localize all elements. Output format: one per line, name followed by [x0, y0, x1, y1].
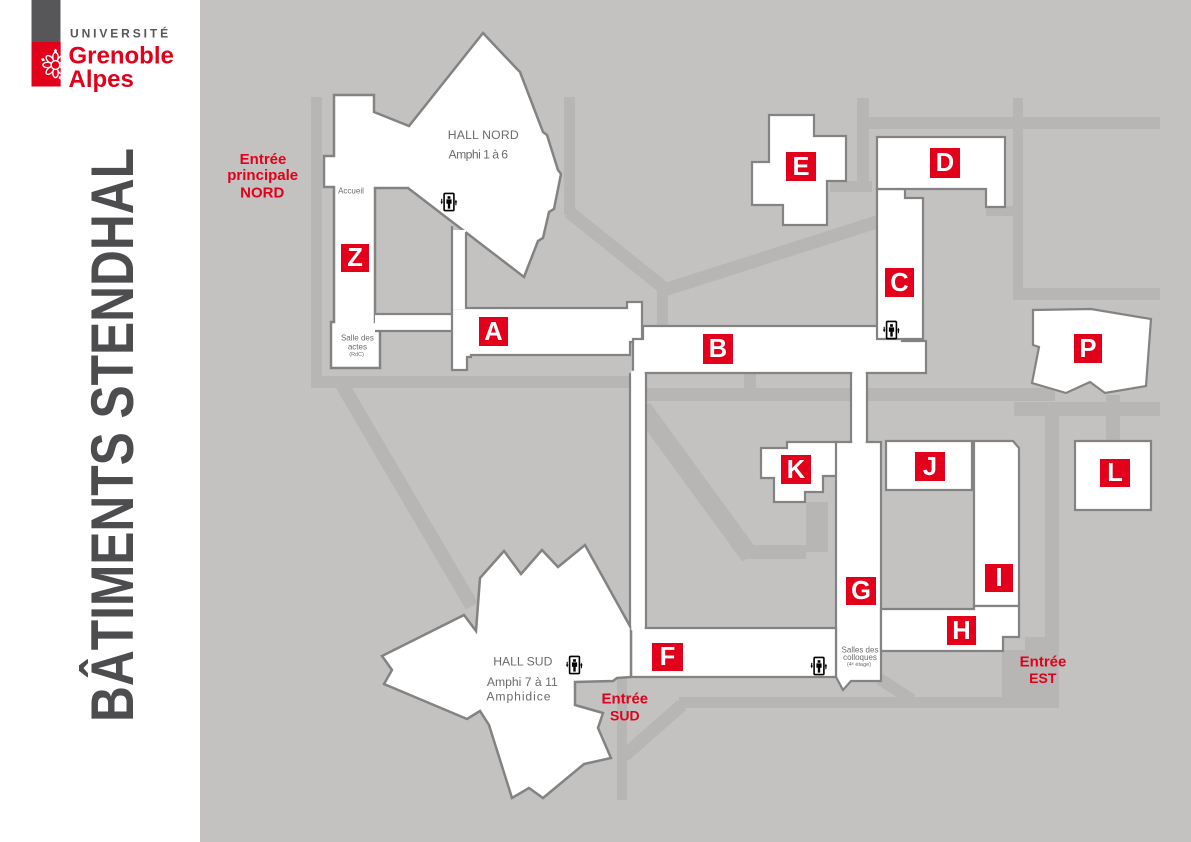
svg-text:G: G — [851, 577, 871, 605]
svg-text:NORD: NORD — [240, 185, 284, 202]
svg-text:C: C — [890, 269, 908, 297]
svg-text:Entrée: Entrée — [1020, 654, 1067, 671]
svg-text:H: H — [952, 617, 970, 645]
svg-text:Alpes: Alpes — [69, 66, 134, 93]
svg-text:Amphi 7 à 11: Amphi 7 à 11 — [487, 675, 558, 689]
svg-text:Entrée: Entrée — [240, 151, 287, 168]
svg-text:A: A — [484, 318, 502, 346]
svg-text:J: J — [923, 453, 937, 481]
svg-text:UNIVERSITÉ: UNIVERSITÉ — [70, 26, 171, 41]
svg-text:Entrée: Entrée — [601, 691, 648, 708]
svg-text:Z: Z — [347, 244, 363, 272]
svg-text:actes: actes — [348, 343, 367, 352]
svg-text:BÂTIMENTS STENDHAL: BÂTIMENTS STENDHAL — [79, 148, 146, 722]
svg-text:Salle des: Salle des — [341, 334, 374, 343]
svg-text:Amphidice: Amphidice — [486, 690, 551, 704]
svg-text:E: E — [792, 153, 809, 181]
svg-text:K: K — [787, 456, 806, 484]
svg-text:L: L — [1107, 459, 1123, 487]
svg-text:B: B — [709, 335, 727, 363]
svg-text:(RdC): (RdC) — [349, 352, 364, 358]
svg-text:I: I — [995, 564, 1002, 592]
svg-text:D: D — [936, 149, 954, 177]
svg-text:EST: EST — [1029, 670, 1057, 686]
svg-text:(4ᵉ étage): (4ᵉ étage) — [847, 662, 871, 668]
svg-text:P: P — [1079, 335, 1096, 363]
svg-text:principale: principale — [227, 167, 298, 184]
svg-text:HALL SUD: HALL SUD — [493, 655, 552, 669]
svg-text:Accueil: Accueil — [338, 187, 364, 196]
svg-text:F: F — [660, 643, 676, 671]
svg-text:SUD: SUD — [610, 708, 640, 724]
svg-text:HALL NORD: HALL NORD — [448, 128, 519, 142]
svg-text:Amphi 1 à 6: Amphi 1 à 6 — [449, 148, 509, 162]
svg-text:colloques: colloques — [843, 653, 877, 662]
